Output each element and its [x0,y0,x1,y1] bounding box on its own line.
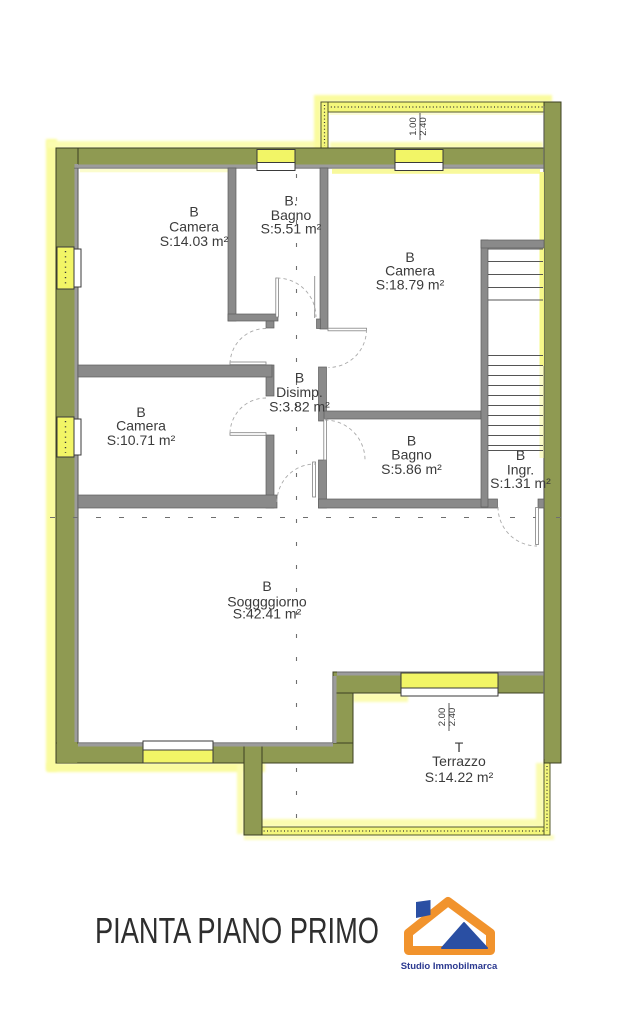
svg-text:2.40: 2.40 [447,708,458,727]
svg-text:B: B [262,578,271,594]
svg-text:Terrazzo: Terrazzo [432,753,486,769]
svg-text:S:42.41 m²: S:42.41 m² [233,606,302,622]
svg-text:S:14.22 m²: S:14.22 m² [425,769,494,785]
svg-text:PIANTA PIANO PRIMO: PIANTA PIANO PRIMO [95,910,379,951]
svg-text:S:5.51 m²: S:5.51 m² [261,221,322,237]
svg-text:2.40: 2.40 [418,117,429,136]
svg-text:S:3.82 m²: S:3.82 m² [269,399,330,415]
svg-text:B: B [189,204,198,220]
svg-text:S:10.71 m²: S:10.71 m² [107,432,176,448]
svg-text:S:14.03 m²: S:14.03 m² [160,233,229,249]
svg-text:Studio Immobilmarca: Studio Immobilmarca [401,961,498,972]
svg-text:S:5.86 m²: S:5.86 m² [381,461,442,477]
svg-text:S:1.31 m²: S:1.31 m² [490,475,551,491]
svg-text:S:18.79 m²: S:18.79 m² [376,277,445,293]
